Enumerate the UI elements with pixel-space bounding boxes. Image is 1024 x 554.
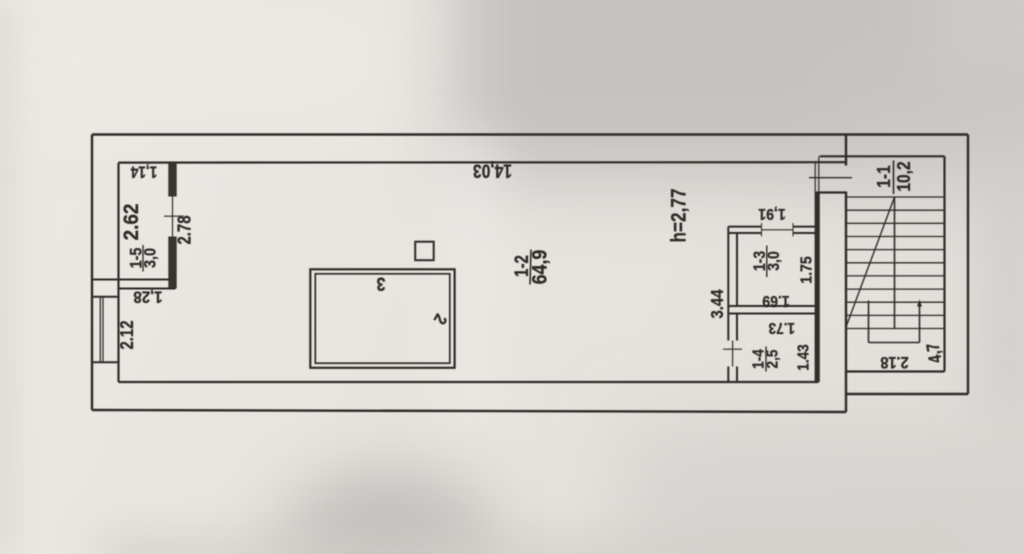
svg-text:3,0: 3,0	[765, 251, 783, 270]
svg-text:14,03: 14,03	[473, 160, 512, 182]
svg-text:1,14: 1,14	[130, 162, 157, 181]
svg-text:3,0: 3,0	[141, 248, 159, 268]
svg-text:2,5: 2,5	[765, 350, 782, 369]
svg-text:4,7: 4,7	[923, 341, 946, 364]
svg-text:2.12: 2.12	[117, 320, 138, 349]
svg-text:2.78: 2.78	[174, 215, 195, 244]
svg-text:1.43: 1.43	[796, 344, 813, 371]
svg-text:2: 2	[430, 311, 451, 328]
svg-text:2.18: 2.18	[880, 353, 909, 371]
svg-text:2.62: 2.62	[120, 204, 143, 241]
svg-text:1,91: 1,91	[758, 205, 785, 223]
svg-text:64,9: 64,9	[528, 249, 552, 284]
svg-text:1.69: 1.69	[762, 292, 789, 310]
svg-text:1,28: 1,28	[133, 287, 162, 305]
svg-text:3.44: 3.44	[708, 290, 727, 319]
svg-text:10,2: 10,2	[894, 161, 915, 191]
svg-text:1-1: 1-1	[874, 165, 895, 188]
svg-text:h=2,77: h=2,77	[667, 189, 691, 243]
svg-text:1.75: 1.75	[797, 256, 815, 283]
svg-text:3: 3	[376, 273, 385, 295]
svg-text:1.73: 1.73	[769, 319, 796, 336]
